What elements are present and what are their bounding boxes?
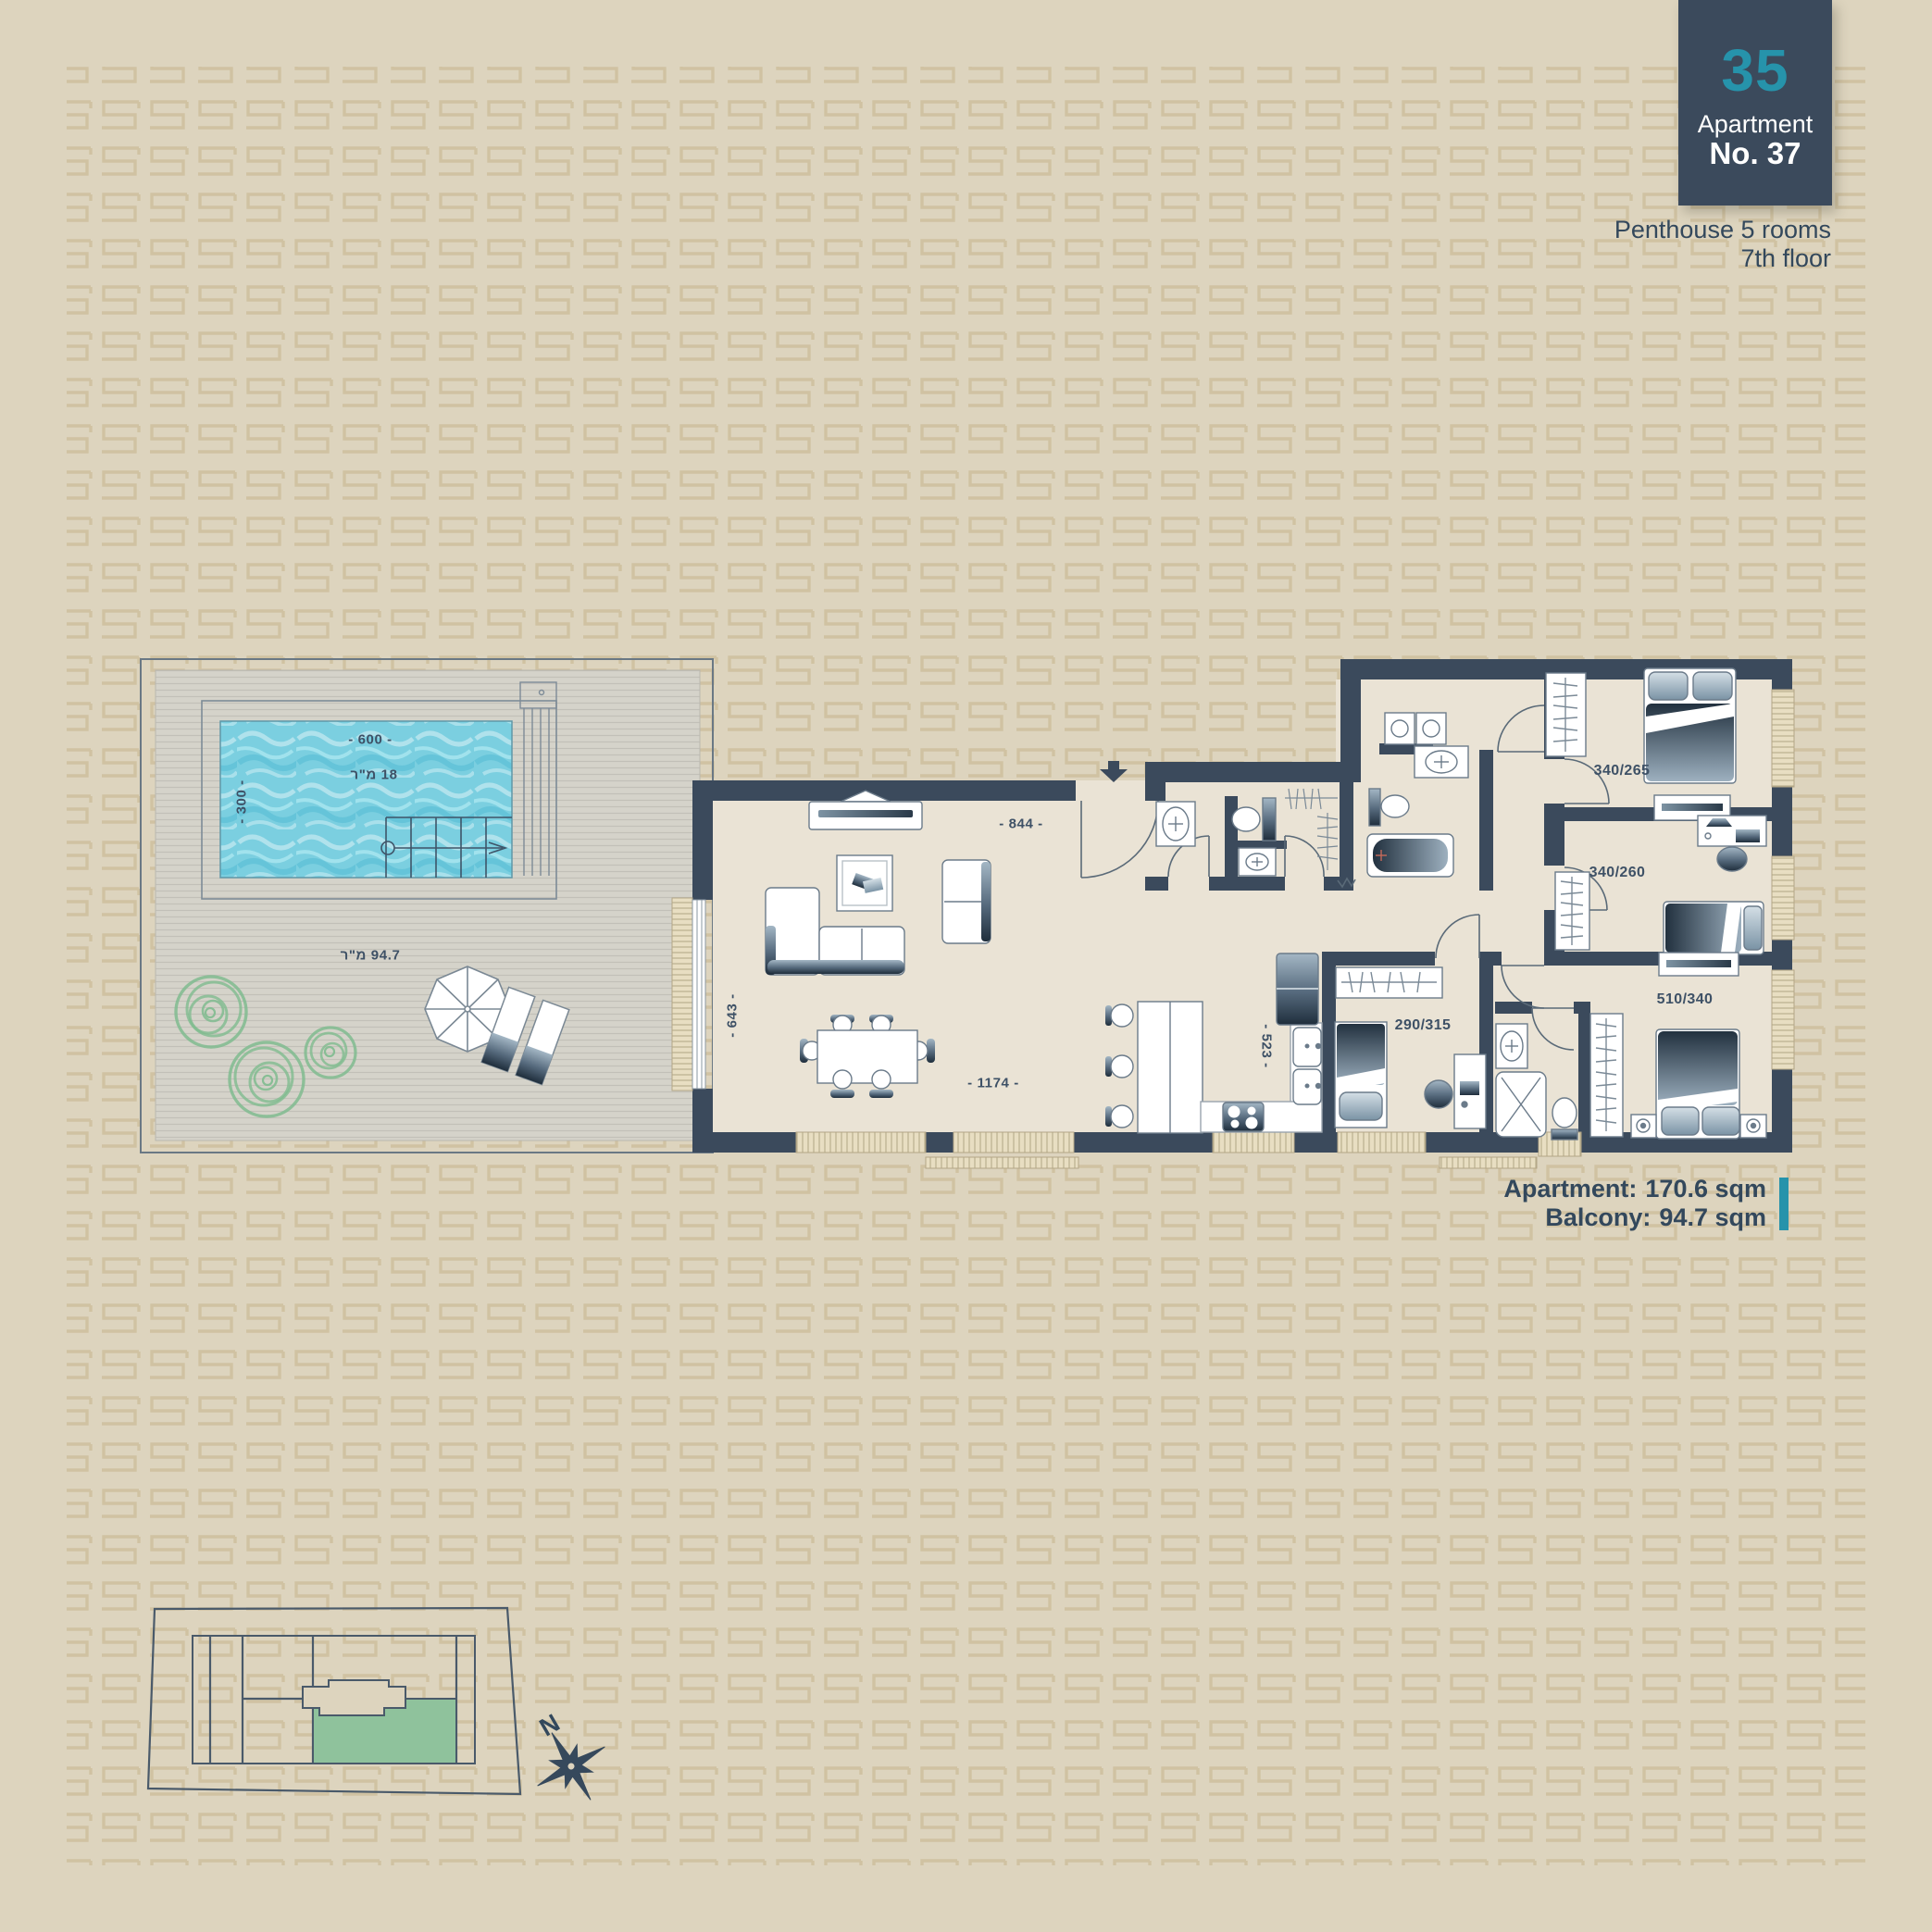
apartment-floor: 7th floor bbox=[1614, 244, 1831, 273]
stool bbox=[1111, 1004, 1133, 1027]
living-bottom-dim: - 1174 - bbox=[967, 1076, 1019, 1091]
coffee-table bbox=[837, 855, 892, 911]
stats-accent-bar bbox=[1779, 1178, 1789, 1230]
block-number: 35 bbox=[1721, 43, 1789, 98]
stool bbox=[1111, 1105, 1133, 1128]
toilet-tank bbox=[1369, 789, 1380, 826]
pool-width-dim: - 600 - bbox=[348, 732, 393, 748]
living-width-dim: - 844 - bbox=[999, 816, 1043, 832]
balcony-area-value: 94.7 sqm bbox=[1659, 1203, 1766, 1231]
balcony-slider-frame bbox=[672, 898, 692, 1091]
pool-depth-dim: - 300 - bbox=[234, 779, 250, 824]
apartment-label: Apartment bbox=[1698, 111, 1814, 137]
window-bedroom-mid-right bbox=[1772, 856, 1794, 940]
floorplan-page: - 600 - 18 מ"ר - 300 - 94.7 מ"ר - 844 - … bbox=[0, 0, 1932, 1932]
balcony-terrace bbox=[141, 659, 713, 1153]
stool bbox=[1111, 1055, 1133, 1078]
ledge bbox=[926, 1157, 1078, 1168]
window-kitchen bbox=[1213, 1132, 1294, 1153]
window-bedroom-middle bbox=[1338, 1132, 1426, 1153]
dining-table bbox=[817, 1030, 917, 1083]
apartment-area-value: 170.6 sqm bbox=[1645, 1175, 1766, 1203]
apartment-number: No. 37 bbox=[1709, 137, 1801, 170]
bedroom-middle-dim: 290/315 bbox=[1395, 1017, 1452, 1034]
bedroom-top-right-dim: 340/265 bbox=[1594, 763, 1651, 779]
balcony-area-row: Balcony:94.7 sqm bbox=[1503, 1203, 1766, 1232]
toilet-tank bbox=[1263, 798, 1276, 841]
bedroom-mid-right-dim: 340/260 bbox=[1589, 865, 1646, 881]
area-stats: Apartment:170.6 sqm Balcony:94.7 sqm bbox=[1503, 1175, 1766, 1232]
toilet bbox=[1552, 1098, 1577, 1128]
apartment-subtitle: Penthouse 5 rooms 7th floor bbox=[1614, 216, 1831, 273]
apartment-header-badge: 35 Apartment No. 37 bbox=[1678, 0, 1832, 206]
ledge bbox=[1440, 1157, 1537, 1168]
window-living-2 bbox=[954, 1132, 1074, 1153]
toilet bbox=[1232, 807, 1260, 831]
floor-plan-canvas bbox=[0, 0, 1932, 1932]
pool-area-label: 18 מ"ר bbox=[350, 767, 397, 783]
desk-chair bbox=[1717, 847, 1747, 871]
loveseat bbox=[942, 860, 991, 943]
toilet bbox=[1381, 795, 1409, 817]
apartment-area-row: Apartment:170.6 sqm bbox=[1503, 1175, 1766, 1203]
toilet-tank bbox=[1552, 1129, 1577, 1140]
kitchen-dim: - 523 - bbox=[1259, 1024, 1275, 1068]
terrace-area-label: 94.7 מ"ר bbox=[341, 948, 401, 964]
window-master bbox=[1772, 970, 1794, 1069]
stove bbox=[1223, 1103, 1264, 1131]
desk-chair bbox=[1425, 1080, 1452, 1108]
bedroom-master-dim: 510/340 bbox=[1657, 991, 1714, 1008]
window-living-1 bbox=[796, 1132, 926, 1153]
dryer bbox=[1416, 713, 1446, 744]
balcony-area-label: Balcony: bbox=[1545, 1203, 1651, 1231]
living-height-dim: - 643 - bbox=[725, 993, 741, 1038]
apartment-type: Penthouse 5 rooms bbox=[1614, 216, 1831, 244]
window-bedroom-top-right bbox=[1772, 690, 1794, 787]
apartment-area-label: Apartment: bbox=[1503, 1175, 1637, 1203]
balcony-slider bbox=[692, 900, 705, 1089]
washer bbox=[1385, 713, 1415, 744]
